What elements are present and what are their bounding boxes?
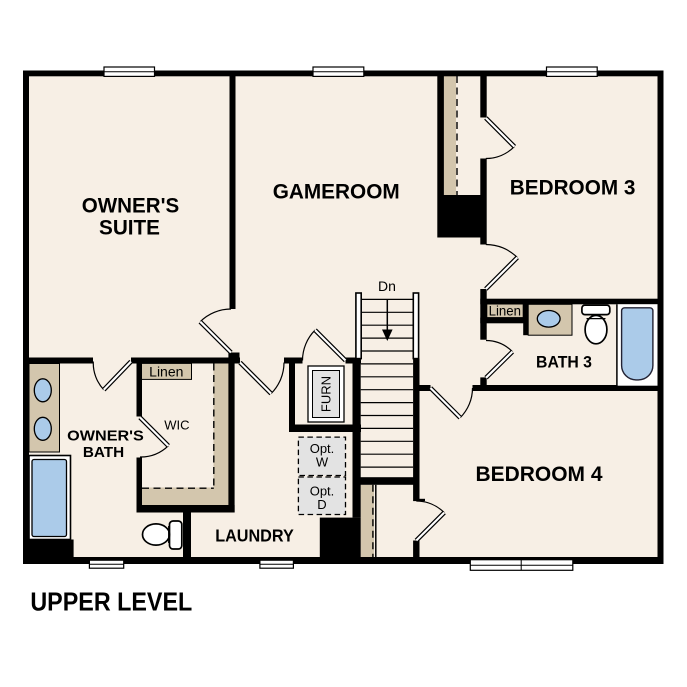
svg-text:OWNER'S: OWNER'S [82,195,180,218]
svg-text:WIC: WIC [164,418,189,433]
svg-text:BEDROOM 3: BEDROOM 3 [510,177,636,200]
svg-text:OWNER'S: OWNER'S [67,428,144,445]
svg-text:Linen: Linen [489,302,521,318]
svg-text:Dn: Dn [378,278,396,294]
svg-text:SUITE: SUITE [99,217,160,240]
svg-text:LAUNDRY: LAUNDRY [215,526,294,546]
svg-text:FURN: FURN [319,376,334,412]
svg-text:UPPER LEVEL: UPPER LEVEL [30,587,192,617]
svg-text:BATH: BATH [83,444,124,461]
svg-text:Linen: Linen [149,363,183,379]
svg-text:D: D [317,497,326,512]
svg-text:BATH 3: BATH 3 [536,354,592,372]
svg-text:GAMEROOM: GAMEROOM [273,181,400,204]
svg-text:BEDROOM 4: BEDROOM 4 [476,463,603,486]
svg-text:W: W [316,455,329,470]
